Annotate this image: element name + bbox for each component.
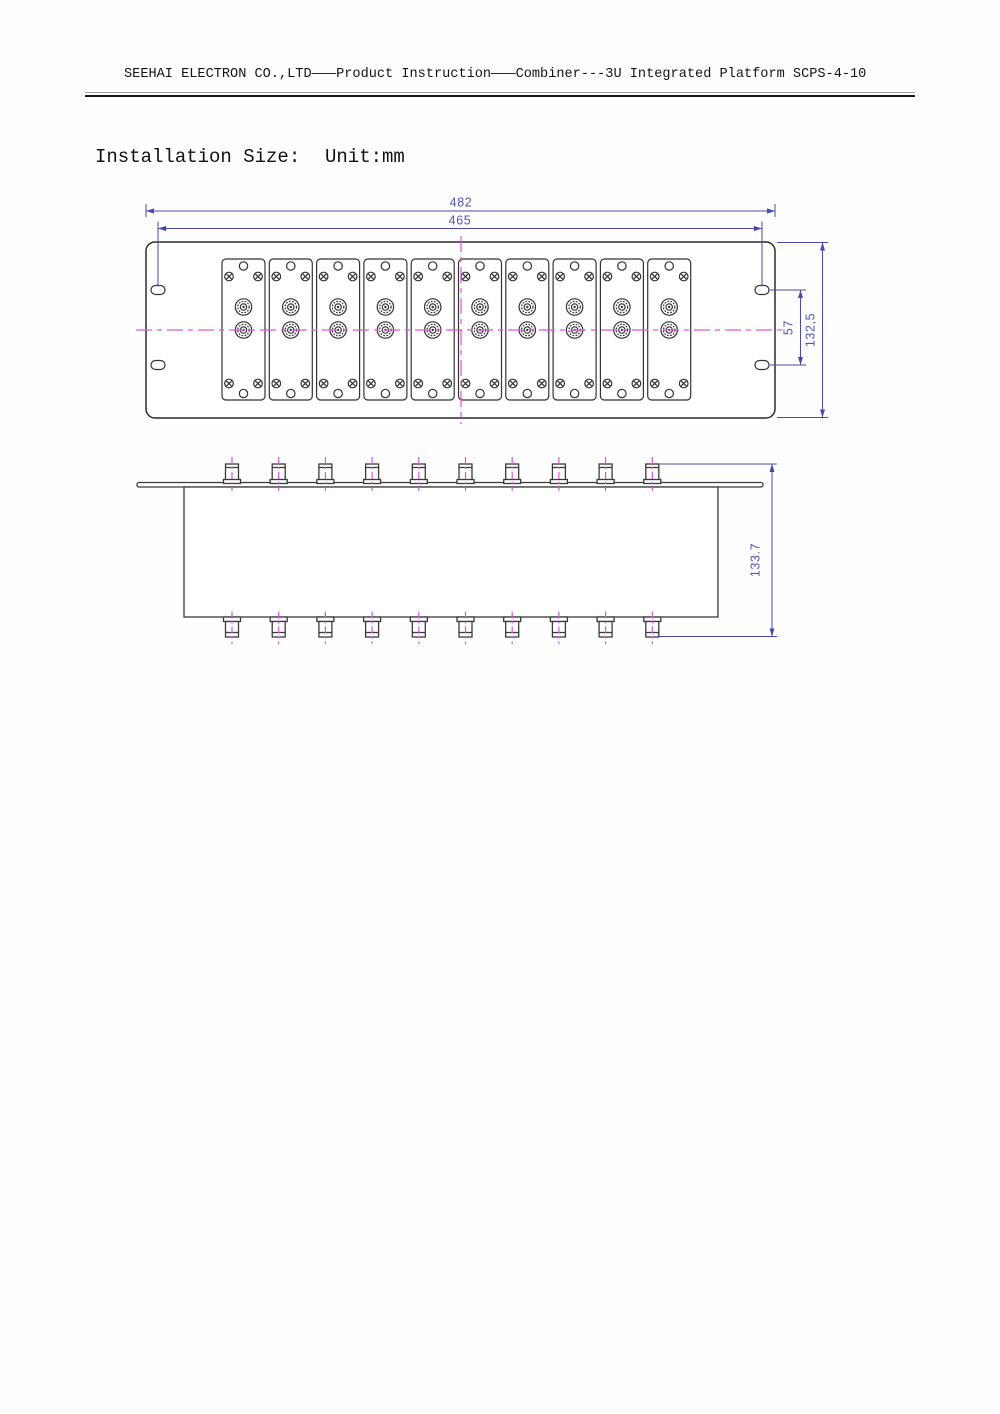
screw-icon: [414, 379, 423, 388]
screw-icon: [603, 379, 612, 388]
rf-connector-icon: [283, 299, 299, 315]
screw-icon: [396, 379, 405, 388]
side-view-drawing: 133.7: [137, 457, 777, 644]
screw-icon: [509, 379, 518, 388]
screw-icon: [556, 379, 565, 388]
screw-icon: [443, 379, 452, 388]
rf-connector-icon: [235, 299, 251, 315]
screw-icon: [225, 379, 234, 388]
side-connector-bottom: [457, 612, 474, 645]
screw-icon: [490, 379, 499, 388]
dimension-label-hole-span-465: 465: [449, 214, 472, 228]
rf-connector-icon: [330, 299, 346, 315]
screw-icon: [396, 272, 405, 281]
side-connector-bottom: [504, 612, 521, 645]
front-view-drawing: 482 465 57 132: [136, 196, 828, 425]
dimension-label-width-482: 482: [450, 196, 473, 210]
screw-icon: [301, 379, 310, 388]
side-body-outline: [184, 487, 718, 617]
rf-connector-icon: [425, 299, 441, 315]
screw-icon: [650, 379, 659, 388]
dimension-label-height-132-5: 132,5: [804, 313, 818, 347]
screw-icon: [348, 272, 357, 281]
screw-icon: [319, 272, 328, 281]
screw-icon: [632, 379, 641, 388]
side-connector-bottom: [270, 612, 287, 645]
rf-connector-icon: [472, 299, 488, 315]
screw-icon: [443, 272, 452, 281]
rf-connector-icon: [519, 299, 535, 315]
screw-icon: [225, 272, 234, 281]
screw-icon: [632, 272, 641, 281]
screw-icon: [461, 379, 470, 388]
screw-icon: [490, 272, 499, 281]
screw-icon: [650, 272, 659, 281]
screw-icon: [254, 379, 263, 388]
screw-icon: [556, 272, 565, 281]
mounting-slot: [755, 361, 769, 370]
screw-icon: [461, 272, 470, 281]
screw-icon: [538, 272, 547, 281]
screw-icon: [301, 272, 310, 281]
side-connector-bottom: [317, 612, 334, 645]
screw-icon: [509, 272, 518, 281]
rf-connector-icon: [614, 299, 630, 315]
screw-icon: [679, 272, 688, 281]
rf-connector-icon: [566, 299, 582, 315]
screw-icon: [585, 379, 594, 388]
mounting-slot: [151, 286, 165, 295]
rf-connector-icon: [377, 299, 393, 315]
mounting-slot: [151, 361, 165, 370]
side-connector-bottom: [550, 612, 567, 645]
screw-icon: [603, 272, 612, 281]
side-connector-bottom: [597, 612, 614, 645]
side-connector-bottom: [224, 612, 241, 645]
dimension-label-hole-pitch-57: 57: [782, 320, 796, 335]
screw-icon: [538, 379, 547, 388]
screw-icon: [679, 379, 688, 388]
side-connector-bottom: [364, 612, 381, 645]
dimension-label-depth-133-7: 133.7: [749, 543, 763, 577]
side-connector-bottom: [644, 612, 661, 645]
screw-icon: [414, 272, 423, 281]
screw-icon: [272, 272, 281, 281]
rf-connector-icon: [661, 299, 677, 315]
screw-icon: [367, 379, 376, 388]
mounting-slot: [755, 286, 769, 295]
screw-icon: [367, 272, 376, 281]
screw-icon: [319, 379, 328, 388]
screw-icon: [585, 272, 594, 281]
document-page: SEEHAI ELECTRON CO.,LTD———Product Instru…: [0, 0, 1000, 1414]
screw-icon: [348, 379, 357, 388]
screw-icon: [272, 379, 281, 388]
side-connector-bottom: [410, 612, 427, 645]
installation-drawing: 482 465 57 132: [0, 0, 1000, 1414]
screw-icon: [254, 272, 263, 281]
